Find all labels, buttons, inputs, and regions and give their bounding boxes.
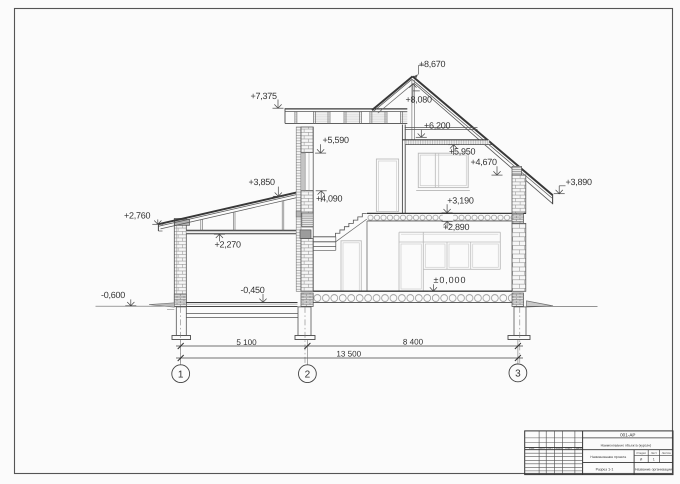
- svg-text:-0,600: -0,600: [101, 290, 125, 300]
- svg-text:Название организации: Название организации: [635, 467, 672, 471]
- svg-text:5 100: 5 100: [236, 338, 257, 347]
- svg-text:+8,080: +8,080: [406, 94, 433, 104]
- svg-text:Подп.: Подп.: [565, 447, 572, 450]
- svg-text:3: 3: [515, 369, 521, 380]
- svg-text:+5,950: +5,950: [449, 146, 476, 156]
- svg-text:1: 1: [178, 369, 184, 380]
- svg-text:Стадия: Стадия: [636, 451, 646, 455]
- svg-text:№док: №док: [555, 447, 563, 450]
- svg-text:Лист: Лист: [651, 451, 658, 455]
- svg-text:13 500: 13 500: [336, 350, 361, 359]
- svg-text:+3,890: +3,890: [566, 177, 593, 187]
- svg-text:8 400: 8 400: [403, 338, 424, 347]
- svg-text:Изм.: Изм.: [529, 447, 535, 450]
- svg-text:Наименование проекта: Наименование проекта: [590, 455, 626, 459]
- svg-text:+2,760: +2,760: [124, 210, 151, 220]
- svg-text:Разрез 1-1: Разрез 1-1: [596, 467, 614, 471]
- svg-text:+8,670: +8,670: [419, 59, 446, 69]
- svg-text:+4,090: +4,090: [316, 194, 343, 204]
- svg-text:001-АР: 001-АР: [620, 433, 635, 438]
- svg-text:Листов: Листов: [662, 451, 672, 455]
- svg-text:+6,200: +6,200: [424, 120, 451, 130]
- svg-text:±0,000: ±0,000: [434, 275, 467, 285]
- svg-text:+2,270: +2,270: [215, 240, 242, 250]
- svg-text:+4,670: +4,670: [471, 157, 498, 167]
- svg-text:Дата: Дата: [576, 447, 582, 450]
- svg-text:2: 2: [305, 369, 311, 380]
- svg-text:Кол.: Кол.: [540, 447, 545, 450]
- svg-text:+3,850: +3,850: [249, 177, 276, 187]
- svg-text:-0,450: -0,450: [241, 285, 265, 295]
- svg-text:+5,590: +5,590: [323, 135, 350, 145]
- svg-text:+7,375: +7,375: [251, 91, 278, 101]
- svg-text:Лист: Лист: [547, 447, 553, 450]
- svg-text:+3,190: +3,190: [447, 195, 474, 205]
- svg-text:1: 1: [653, 458, 655, 462]
- svg-text:Наименование объекта (курсач): Наименование объекта (курсач): [601, 443, 652, 447]
